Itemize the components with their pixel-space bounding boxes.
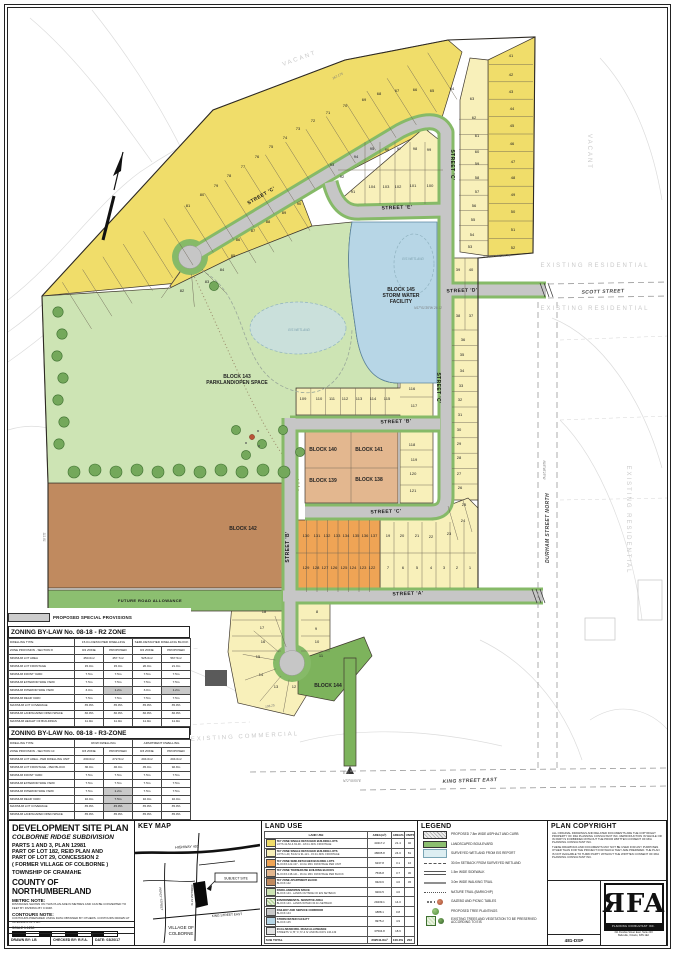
lot-number: 117 [411,403,418,408]
lot-number: 41 [509,53,514,58]
lot-number: 32 [458,397,463,402]
lot-number: 116 [409,386,416,391]
lot-number: 85 [231,253,236,258]
key-map-drawing: SUBJECT SITEHIGHWAY 401DURHAM ST NKING S… [135,821,260,945]
legend-swatch-nat-icon [422,892,448,893]
block-label: BLOCK 142 [229,526,257,532]
rfa-logo: ЯFA PLANNING CONSULTANT INC. [604,883,664,931]
lot-number: 113 [356,396,363,401]
lot-number: 23 [447,531,452,536]
lot-number: 123 [360,565,367,570]
table-row: MINIMUM REAR YARD7.5m7.5m7.5m7.5m [9,694,191,702]
lot-number: 56 [472,203,477,208]
bearing-annotation: N17°01'35"W 20.12 [414,306,442,310]
lot-number: 49 [511,192,516,197]
lot-number: 114 [370,396,377,401]
table-row: MINIMUM LOT FRONTAGE - PER BLOCK36.0m46.… [9,763,191,771]
lot-number: 102 [395,184,402,189]
drawing-number: 481-DSP [548,934,600,945]
keymap-label: PERCY STREET [158,887,164,910]
block-label: BLOCK 138 [355,477,383,483]
copyright-bottom: 481-DSP ЯFA PLANNING CONSULTANT INC. 311… [548,880,666,945]
lot-number: 63 [470,96,475,101]
lot-number: 83 [205,279,210,284]
lot-number: 121 [410,488,417,493]
metric-note: DISTANCES SHOWN ON THIS PLAN ARE IN METR… [12,903,131,910]
zoning-r3-title: ZONING BY-LAW No. 08-18 - R3-ZONE [8,727,190,739]
lot-number: 137 [371,533,378,538]
lot-number: 92 [340,174,345,179]
rfa-address-2: Belleville, Ontario, K8N 1E2 [614,935,652,938]
lot-number: 53 [468,244,473,249]
legend-item: EXISTING TREES AND VEGETATION TO BE PRES… [418,916,547,926]
lot-number: 74 [283,135,288,140]
lot-number: 127 [322,565,329,570]
copyright-panel: PLAN COPYRIGHT ALL ORIGINAL DRAWINGS AND… [548,820,667,946]
street-label: STREET 'E' [381,204,412,211]
lot-number: 16 [261,639,266,644]
copyright-para-1: ALL ORIGINAL DRAWINGS AND RELATED DOCUME… [552,832,662,845]
drawing-number-cell: 481-DSP [548,881,601,945]
lot-number: 58 [475,175,480,180]
street-label: DURHAM STREET NORTH [545,493,551,563]
township-line: TOWNSHIP OF CRAMAHE [12,870,131,876]
lot-number: 135 [353,533,360,538]
street-label: STREET 'C' [435,372,441,403]
lot-number: 42 [509,72,514,77]
lot-number: 43 [509,89,514,94]
lot-number: 93 [330,162,335,167]
table-row: 'R2' ZONE SINGLE DETACHED BUILDING LOTSL… [265,848,415,858]
lot-number: 34 [460,368,465,373]
block-label: BLOCK 144 [314,683,342,689]
lot-number: 21 [415,533,420,538]
legend-swatch-setback-icon [422,863,448,864]
lot-number: 25 [462,502,467,507]
lot-number: 69 [362,97,367,102]
legend-swatch-wet-icon [422,849,448,858]
lot-number: 38 [456,313,461,318]
lot-number: 129 [303,565,310,570]
street-label: STREET 'A' [392,590,423,597]
lot-number: 96 [385,147,390,152]
table-row: 'R2' ZONE SINGLE DETACHED BUILDING LOTSL… [265,838,415,848]
legend-item: GAZEBO AND PICNIC TABLES [418,897,547,907]
lot-number: 30 [457,427,462,432]
keymap-label: HIGHWAY 401 [175,844,199,849]
block-label: BLOCK 140 [309,447,337,453]
lot-number: 64 [450,86,455,91]
existing-area-label: EXISTING RESIDENTIAL [540,263,649,269]
legend-panel: LEGEND PROPOSED 7.8m WIDE ASPHALT AND CU… [418,820,548,946]
lot-number: 66 [413,87,418,92]
bearing-annotation: 8.10 [343,771,349,775]
table-row: MINIMUM REAR YARD10.0m7.5m10.0m10.0m [9,795,191,803]
table-row: MINIMUM LOT AREA - PER DWELLING UNIT230.… [9,755,191,763]
lot-number: 79 [214,183,219,188]
table-row: MINIMUM EXTERIOR SIDE YARD7.5m7.5m7.5m7.… [9,779,191,787]
lot-number: 51 [511,227,516,232]
legal-line-4: ( FORMER VILLAGE OF COLBORNE ) [12,862,131,868]
bearing-annotation: N72°55'05"E [343,779,362,783]
table-row: MAXIMUM HEIGHT OF BUILDINGS11.0m11.0m11.… [9,718,191,726]
table-row: MAXIMUM LOT COVERAGE35.0%45.0%35.0%35.0% [9,803,191,811]
lot-number: 91 [351,189,356,194]
key-map-header: KEY MAP [135,821,174,830]
legend-item: PROPOSED TREE PLANTINGS [418,907,547,917]
legend-item: PROPOSED 7.8m WIDE ASPHALT AND CURB [418,830,547,840]
table-row: 20.0m MUNICIPAL ROAD ALLOWANCESTREETS 'A… [265,926,415,936]
lot-number: 76 [255,154,260,159]
special-provisions-swatch [8,613,50,622]
lot-number: 70 [343,103,348,108]
lot-number: 81 [186,203,191,208]
table-row: 'R3' ZONE SEMI-DETACHED BUILDING LOTSBLO… [265,858,415,868]
lot-number: 124 [350,565,357,570]
lot-number: 19 [386,533,391,538]
zoning-table-r2: ZONING BY-LAW No. 08-18 - R2 ZONE DWELLI… [8,626,190,735]
block-label: BLOCK 141 [355,447,383,453]
block-label: BLOCK 139 [309,478,337,484]
lot-number: 103 [383,184,390,189]
lot-number: 65 [430,88,435,93]
rfa-monogram: ЯFA [606,885,662,923]
lot-number: 77 [241,164,246,169]
table-row: MAXIMUM LOT COVERAGE35.0%35.0%35.0%35.0% [9,702,191,710]
keymap-label: COLBORNE [169,931,194,936]
lot-number: 98 [413,146,418,151]
zoning-r2-title: ZONING BY-LAW No. 08-18 - R2 ZONE [8,626,190,638]
legend-header: LEGEND [418,821,547,830]
lot-number: 88 [266,219,271,224]
legend-swatch-tree-icon [422,908,448,915]
legend-items: PROPOSED 7.8m WIDE ASPHALT AND CURBLANDS… [418,830,547,926]
lot-number: 45 [510,123,515,128]
signature-rows: DRAWN BY: LB CHECKED BY: R.F.A. DATE: 03… [9,921,134,945]
table-row: MINIMUM FRONT YARD7.5m7.5m7.5m7.5m [9,771,191,779]
keymap-label: VILLAGE OF [168,925,194,930]
page-title: DEVELOPMENT SITE PLAN [12,823,131,833]
lot-number: 112 [342,396,349,401]
legend-item: 3.0m WIDE WALKING TRAIL [418,878,547,888]
lot-number: 101 [410,183,417,188]
legend-swatch-blvd-icon [422,841,448,848]
table-row: MINIMUM LANDSCAPED OPEN SPACE30.0%30.0%3… [9,710,191,718]
table-row: 'R3' ZONE APARTMENT BLOCKBLOCK 1429320.6… [265,877,415,887]
table-row: RAILWAY AND SERVICE CORRIDORBLOCK 144188… [265,907,415,917]
lot-number: 55 [471,217,476,222]
street-label: STREET 'B' [285,531,291,562]
keymap-label: SUBJECT SITE [224,877,249,881]
lot-number: 90 [297,201,302,206]
lot-number: 128 [313,565,320,570]
logo-area: ЯFA PLANNING CONSULTANT INC. 311 Dundas … [601,881,666,945]
existing-area-label: VACANT [586,134,592,170]
lot-number: 80 [200,192,205,197]
lot-number: 130 [303,533,310,538]
lot-number: 14 [259,672,264,677]
legend-swatch-trail-icon [422,882,448,885]
lot-number: 24 [461,518,466,523]
table-row: MINIMUM LANDSCAPED OPEN SPACE35.0%35.0%3… [9,811,191,819]
lot-number: 35 [460,352,465,357]
county-line: COUNTY OF NORTHUMBERLAND [12,878,131,896]
lot-number: 119 [411,457,418,462]
lot-number: 73 [296,126,301,131]
subtotal-row: SUB TOTAL202541.8m²100.0%202 [265,936,415,944]
copyright-header: PLAN COPYRIGHT [548,821,666,830]
legend-item: 1.5m WIDE SIDEWALK [418,868,547,878]
lot-number: 118 [409,442,416,447]
wetland-label: EIS WETLAND [402,257,424,261]
lot-number: 57 [475,189,480,194]
zoning-r2-body: DWELLING TYPE15.0m DETACHED DWELLINGSEMI… [8,638,190,735]
legend-swatch-gazebo-icon [422,899,448,905]
lot-number: 61 [475,133,480,138]
land-use-table: LAND USEAREA(m²)AREA%UNITS'R2' ZONE SING… [262,831,417,944]
lot-number: 48 [511,175,516,180]
legend-item: SURVEYED WETLAND FROM EIS REPORT [418,849,547,859]
lot-number: 95 [370,146,375,151]
keymap-label: KING STREET EAST [212,912,243,918]
existing-area-label: EXISTING RESIDENTIAL [540,306,649,312]
lot-number: 26 [458,485,463,490]
lot-number: 13 [274,684,279,689]
lot-number: 29 [457,441,462,446]
lot-number: 120 [410,471,417,476]
lot-number: 17 [260,625,265,630]
lot-number: 100 [427,183,434,188]
legend-item: NATURE TRAIL (BARKCHIP) [418,888,547,898]
checked-by: CHECKED BY: R.F.A. [51,934,93,945]
street-label: STREET 'C' [449,149,455,180]
lot-number: 136 [362,533,369,538]
lot-number: 15 [256,654,261,659]
block-label: FACILITY [390,299,413,305]
lot-number: 39 [456,267,461,272]
lot-number: 62 [472,115,477,120]
legend-item: 30.0m SETBACK FROM SURVEYED WETLAND [418,859,547,869]
lot-number: 20 [400,533,405,538]
lot-number: 109 [300,396,307,401]
table-row: ENVIRONMENTAL SENSITIVE AREABLOCK 143 - … [265,897,415,907]
legend-swatch-asphalt-icon [422,831,448,839]
lot-number: 59 [475,161,480,166]
lot-number: 122 [369,565,376,570]
table-row: PARKLAND/OPEN SPACEBLOCK 143 - LANDS OUT… [265,887,415,897]
table-row: MINIMUM INTERIOR SIDE YARD7.5m1.2m7.5m7.… [9,787,191,795]
lot-number: 75 [269,144,274,149]
lot-number: 46 [510,141,515,146]
lot-number: 67 [395,88,400,93]
lot-number: 94 [354,154,359,159]
lot-number: 71 [326,110,331,115]
legend-swatch-existing-icon [422,916,448,926]
lot-number: 132 [324,533,331,538]
copyright-para-2: THESE DRAWINGS AND DOCUMENTS MAY NOT BE … [552,846,662,859]
table-row: MINIMUM FRONT YARD7.5m7.5m7.5m7.5m [9,670,191,678]
lot-number: 47 [511,159,516,164]
lot-number: 134 [343,533,350,538]
lot-number: 12 [292,684,297,689]
lot-number: 36 [461,337,466,342]
lot-number: 54 [470,232,475,237]
page-subtitle: COLBORNE RIDGE SUBDIVISION [12,834,131,841]
rfa-name: PLANNING CONSULTANT INC. [606,923,662,929]
lot-number: 87 [251,228,256,233]
existing-area-label: EXISTING RESIDENTIAL [625,465,631,574]
table-row: MINIMUM LOT AREA450.0m²457.7m²525.0m²567… [9,654,191,662]
lot-number: 126 [331,565,338,570]
street-label: STREET 'B' [380,418,411,425]
lot-number: 82 [180,288,185,293]
lot-number: 111 [329,396,336,401]
wetland-label: EIS WETLAND [288,328,310,332]
plan-sheet: 6364656667686970717273747576777879808182… [0,0,675,953]
block-label: PARKLAND/OPEN SPACE [206,380,268,386]
land-use-header: LAND USE [262,821,417,830]
table-row: STORM WATER FACILITYBLOCK 1459975.24.9 [265,917,415,927]
legend-item: LANDSCAPED BOULEVARD [418,840,547,850]
title-block-panel: DEVELOPMENT SITE PLAN COLBORNE RIDGE SUB… [8,820,135,946]
title-strip: DEVELOPMENT SITE PLAN COLBORNE RIDGE SUB… [8,820,667,946]
lot-number: 10 [315,639,320,644]
lot-number: 72 [311,118,316,123]
land-use-panel: LAND USE LAND USEAREA(m²)AREA%UNITS'R2' … [262,820,418,946]
drawn-by: DRAWN BY: LB [9,934,51,945]
lot-number: 52 [511,245,516,250]
key-map-panel: KEY MAP SUBJECT SITEHIGHWAY 401DURHAM ST… [135,820,262,946]
lot-number: 31 [458,412,463,417]
lot-number: 28 [457,455,462,460]
special-provisions-note: PROPOSED SPECIAL PROVISIONS [8,611,190,623]
lot-number: 125 [341,565,348,570]
lot-number: 99 [427,147,432,152]
lot-number: 115 [384,396,391,401]
table-row: MINIMUM LOT FRONTAGE15.0m15.0m20.0m21.0m [9,662,191,670]
lot-number: 131 [314,533,321,538]
lot-number: 22 [429,534,434,539]
bearing-annotation: 111.81 [42,532,46,542]
lot-number: 97 [397,146,402,151]
street-label: FUTURE ROAD ALLOWANCE [118,598,182,603]
lot-number: 89 [282,210,287,215]
lot-number: 18 [262,609,267,614]
lot-number: 44 [510,106,515,111]
lot-number: 110 [316,396,323,401]
bearing-annotation: N16°46'25"W [542,461,546,481]
lot-number: 33 [459,383,464,388]
lot-number: 27 [457,471,462,476]
lot-number: 68 [377,91,382,96]
special-provisions-label: PROPOSED SPECIAL PROVISIONS [53,615,132,620]
lot-number: 40 [469,267,474,272]
table-row: MINIMUM INTERIOR SIDE YARD3.0m1.2m3.0m1.… [9,686,191,694]
lot-number: 104 [369,184,376,189]
lot-number: 78 [227,173,232,178]
table-row: MINIMUM EXTERIOR SIDE YARD7.5m7.5m7.5m7.… [9,678,191,686]
lot-number: 86 [236,237,241,242]
lot-number: 37 [469,313,474,318]
lot-number: 60 [475,149,480,154]
date-label: DATE: 03/20/17 [93,934,134,945]
street-label: STREET 'C' [370,508,401,515]
keymap-label: DURHAM ST N [190,885,194,906]
street-label: STREET 'D' [446,287,477,294]
lot-number: 50 [511,209,516,214]
legend-swatch-sidewalk-icon [422,871,448,875]
table-row: 'R3' ZONE TOWNHOUSE BUILDING BLOCKSBLOCK… [265,868,415,878]
lot-number: 133 [334,533,341,538]
lot-number: 84 [220,267,225,272]
